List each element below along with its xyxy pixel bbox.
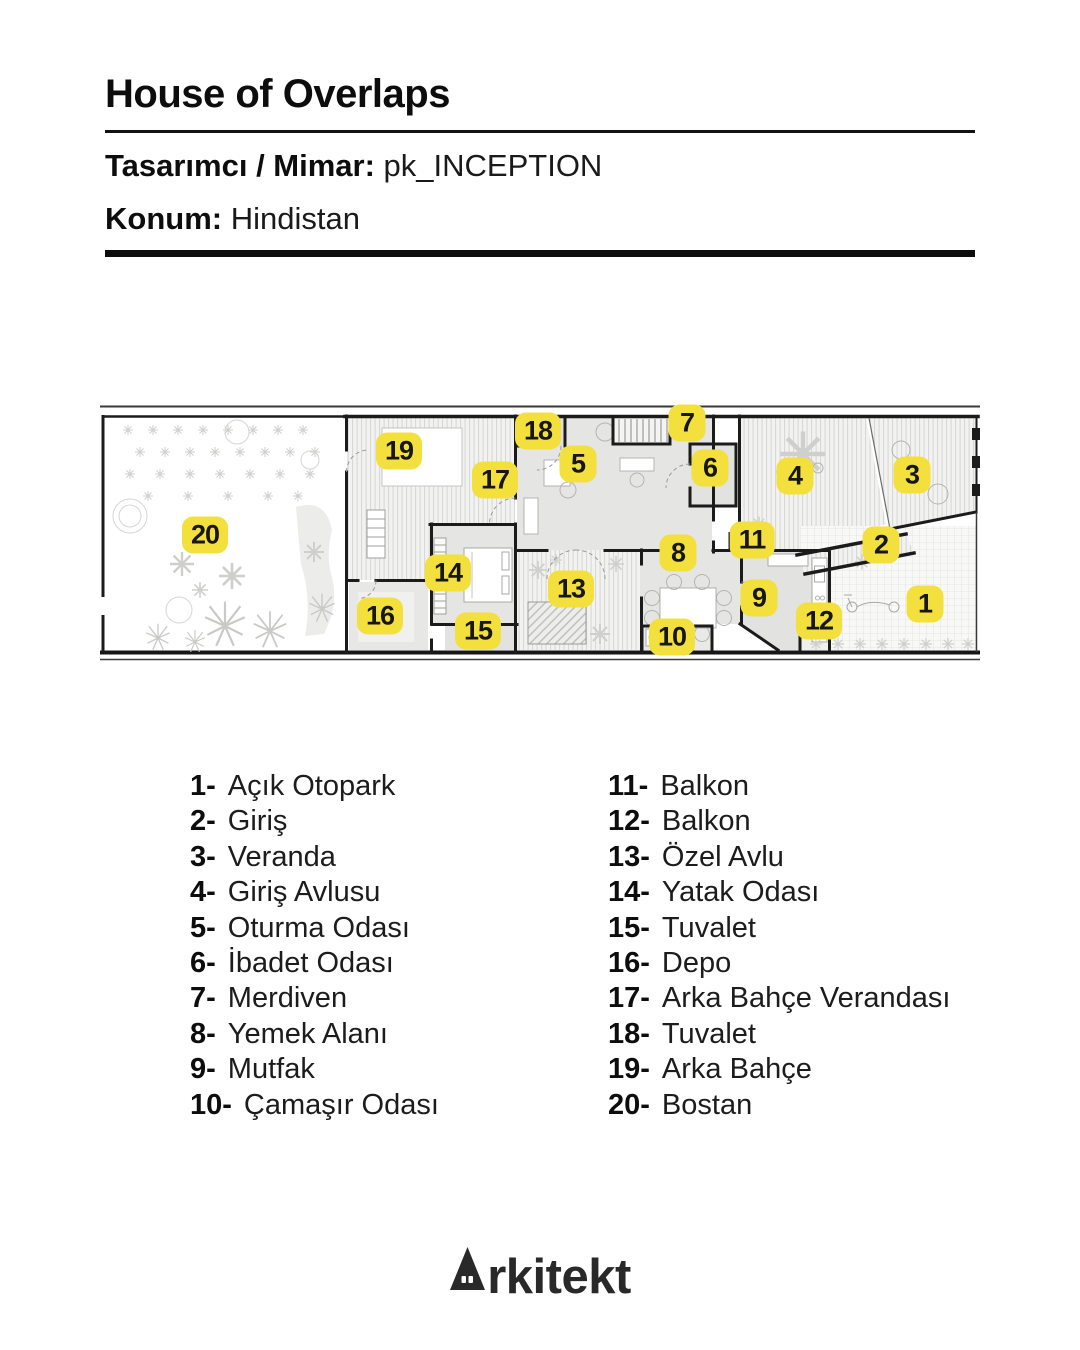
room-label-6: 6: [692, 450, 729, 487]
legend-item-9: 9-Mutfak: [190, 1052, 439, 1087]
room-label-11: 11: [730, 522, 775, 559]
footer: rkitekt: [0, 1246, 1080, 1298]
room-label-3: 3: [894, 457, 931, 494]
header: House of Overlaps Tasarımcı / Mimar: pk_…: [105, 72, 975, 257]
room-label-12: 12: [796, 603, 842, 640]
room-label-9: 9: [741, 580, 778, 617]
designer-label: Tasarımcı / Mimar:: [105, 148, 375, 183]
legend-item-5: 5-Oturma Odası: [190, 911, 439, 946]
designer-line: Tasarımcı / Mimar: pk_INCEPTION: [105, 146, 975, 186]
legend-item-1: 1-Açık Otopark: [190, 769, 439, 804]
room-label-15: 15: [455, 613, 501, 650]
legend-item-15: 15-Tuvalet: [608, 911, 951, 946]
poster: House of Overlaps Tasarımcı / Mimar: pk_…: [0, 0, 1080, 1350]
room-label-16: 16: [357, 598, 403, 635]
room-label-20: 20: [182, 517, 228, 554]
floor-plan: 1234567891011121314151617181920: [100, 402, 980, 662]
room-label-2: 2: [863, 527, 900, 564]
legend-item-20: 20-Bostan: [608, 1088, 951, 1123]
room-label-13: 13: [548, 571, 594, 608]
room-label-1: 1: [907, 586, 944, 623]
room-label-14: 14: [425, 555, 471, 592]
room-label-17: 17: [472, 462, 518, 499]
divider-top: [105, 130, 975, 133]
room-label-10: 10: [649, 619, 695, 656]
legend-item-4: 4-Giriş Avlusu: [190, 875, 439, 910]
divider-bottom: [105, 250, 975, 257]
legend-item-10: 10-Çamaşır Odası: [190, 1088, 439, 1123]
room-label-8: 8: [660, 535, 697, 572]
legend-item-17: 17-Arka Bahçe Verandası: [608, 981, 951, 1016]
legend-column-left: 1-Açık Otopark2-Giriş3-Veranda4-Giriş Av…: [190, 769, 439, 1123]
legend-item-8: 8-Yemek Alanı: [190, 1017, 439, 1052]
room-label-18: 18: [515, 413, 561, 450]
designer-value: pk_INCEPTION: [384, 148, 603, 183]
legend-item-2: 2-Giriş: [190, 804, 439, 839]
brand-logo-text: rkitekt: [487, 1256, 631, 1298]
legend: 1-Açık Otopark2-Giriş3-Veranda4-Giriş Av…: [190, 769, 990, 1134]
room-label-5: 5: [560, 446, 597, 483]
room-label-7: 7: [669, 405, 706, 442]
legend-item-3: 3-Veranda: [190, 840, 439, 875]
legend-item-6: 6-İbadet Odası: [190, 946, 439, 981]
legend-column-right: 11-Balkon12-Balkon13-Özel Avlu14-Yatak O…: [608, 769, 951, 1123]
legend-item-16: 16-Depo: [608, 946, 951, 981]
logo-a-icon: [449, 1246, 486, 1291]
legend-item-12: 12-Balkon: [608, 804, 951, 839]
legend-item-14: 14-Yatak Odası: [608, 875, 951, 910]
room-label-4: 4: [777, 458, 814, 495]
legend-item-19: 19-Arka Bahçe: [608, 1052, 951, 1087]
legend-item-11: 11-Balkon: [608, 769, 951, 804]
location-line: Konum: Hindistan: [105, 199, 975, 239]
legend-item-18: 18-Tuvalet: [608, 1017, 951, 1052]
location-value: Hindistan: [231, 201, 360, 236]
floor-plan-labels: 1234567891011121314151617181920: [100, 402, 980, 662]
page-title: House of Overlaps: [105, 72, 975, 117]
legend-item-13: 13-Özel Avlu: [608, 840, 951, 875]
room-label-19: 19: [376, 433, 422, 470]
legend-item-7: 7-Merdiven: [190, 981, 439, 1016]
brand-logo: rkitekt: [449, 1246, 631, 1298]
location-label: Konum:: [105, 201, 222, 236]
